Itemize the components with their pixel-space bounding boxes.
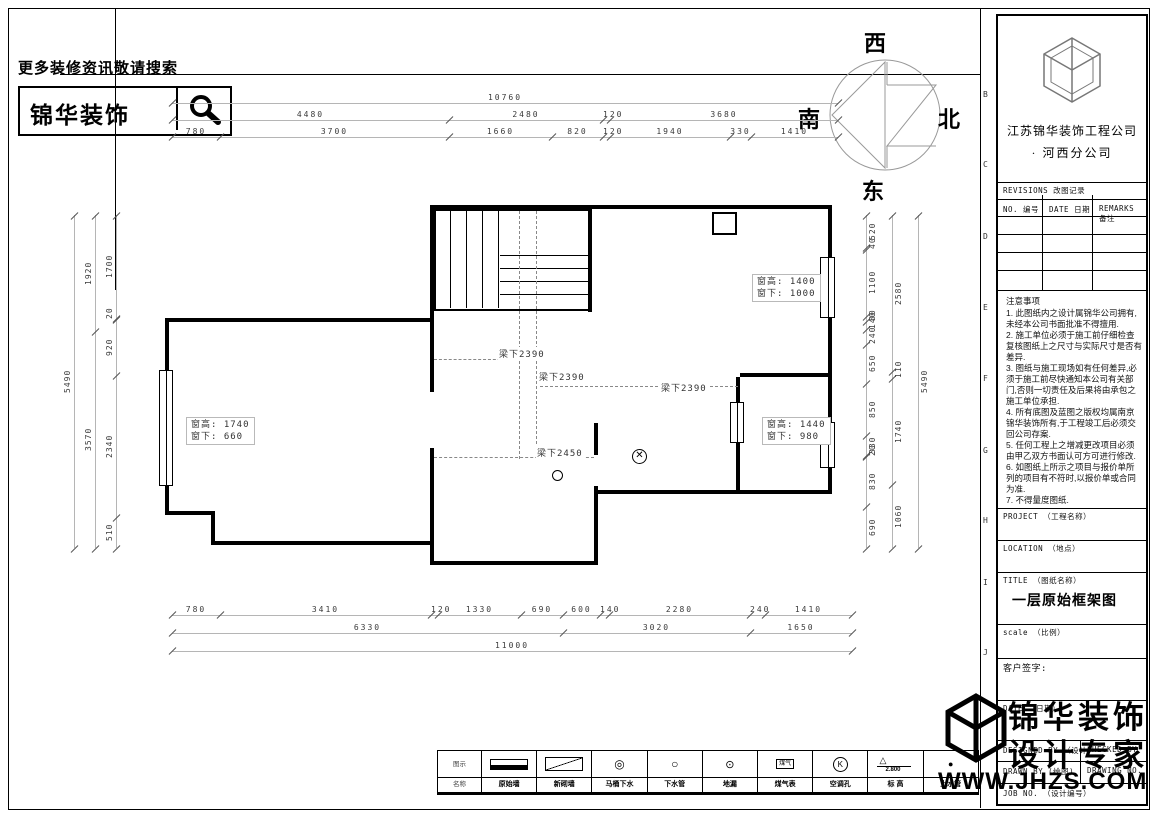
wall-segment: [430, 322, 434, 392]
revisions-col-remarks: REMARKS 备注: [1094, 201, 1146, 224]
stair-tread-line: [500, 294, 588, 295]
window-tag: 窗高: 1740窗下: 660: [186, 417, 255, 445]
scale-label: scale （比例）: [998, 624, 1146, 638]
dim-chain-top-mid: 448024801203680: [172, 107, 838, 121]
wall-segment: [430, 448, 434, 565]
stair-tread-line: [500, 255, 588, 256]
dim-value: 3680: [610, 110, 838, 119]
drawing-title: 一层原始框架图: [998, 586, 1146, 610]
stair-tread-line: [500, 268, 588, 269]
note-item: 4. 所有底图及蓝图之版权均属南京锦华装饰所有,于工程竣工后必须交回公司存案.: [1006, 407, 1142, 440]
wall-segment: [165, 511, 215, 515]
legend-item-name: 原始墙: [482, 778, 536, 792]
floor-drain-icon: ✕: [632, 449, 647, 464]
legend-name-cell: 原始墙: [481, 777, 536, 792]
wall-segment: [434, 561, 598, 565]
grid-letter-E: E: [983, 303, 988, 312]
client-sign-label: 客户签字:: [998, 658, 1146, 674]
dim-value: 2580: [893, 215, 904, 371]
legend-name-cell: 地漏: [702, 777, 757, 792]
beam-label: 梁下2390: [498, 347, 546, 360]
grid-letter-J: J: [983, 648, 988, 657]
beam-dashed-line: [519, 211, 520, 459]
legend-symbol-drain-pipe: ○: [647, 750, 702, 777]
dim-value: 1940: [610, 127, 730, 136]
beam-label: 梁下2390: [660, 381, 708, 394]
legend-item-name: 煤气表: [758, 778, 812, 792]
wall-segment: [828, 377, 832, 422]
title-box: TITLE （图纸名称） 一层原始框架图: [998, 572, 1146, 625]
dim-value: 140: [600, 605, 609, 614]
dim-chain-bottom-detail: 7803410120133069060014022802401410: [172, 602, 852, 616]
brand-name: 锦华装饰: [30, 96, 130, 130]
dim-line: [172, 120, 838, 121]
dim-value: 1060: [893, 484, 904, 548]
dim-value: 4480: [172, 110, 449, 119]
legend-name-cell: 标 高: [867, 777, 922, 792]
legend-symbol-wall-new: [536, 750, 591, 777]
wall-segment: [211, 541, 434, 545]
revisions-grid-col1: [1042, 195, 1043, 290]
dim-line: [172, 137, 838, 138]
dim-chain-right-total: 5490: [916, 215, 930, 548]
dim-value: 830: [867, 456, 878, 506]
dim-value: 3570: [83, 331, 94, 548]
dim-value: 3700: [220, 127, 449, 136]
company-cube-logo-icon: [1038, 34, 1106, 110]
wall-new-icon: [537, 751, 591, 777]
dim-value: 1920: [83, 215, 94, 331]
note-item: 2. 施工单位必须于施工前仔细检查复核图纸上之尺寸与实际尺寸是否有差异.: [1006, 330, 1142, 363]
legend-name-cell: 煤气表: [757, 777, 812, 792]
dim-value: 510: [104, 517, 115, 548]
grid-letter-I: I: [983, 578, 988, 587]
location-box: LOCATION （地点）: [998, 540, 1146, 573]
legend-item-name: 地漏: [703, 778, 757, 792]
dim-value: 1410: [765, 605, 852, 614]
dim-value: 850: [867, 383, 878, 435]
dim-chain-right-detail: 5204011008014024065085033020830690: [864, 215, 878, 548]
dim-value: 240: [750, 605, 765, 614]
revisions-box: REVISIONS 改图记录 NO. 编号 DATE 日期 REMARKS 备注: [998, 182, 1146, 291]
revisions-col-date: DATE 日期: [1044, 201, 1090, 215]
wall-segment: [598, 490, 832, 494]
dim-value: 5490: [62, 215, 73, 548]
stair-tread-line: [500, 281, 588, 282]
legend-header-symbol: 图示: [437, 750, 481, 777]
dim-value: 3020: [563, 623, 750, 632]
search-hint-text: 更多装修资讯敬请搜索: [18, 57, 178, 78]
company-branch: · 河西分公司: [998, 144, 1146, 161]
notes-box: 注意事项 1. 此图纸内之设计属锦华公司拥有,未经本公司书面批准不得擅用. 2.…: [998, 290, 1146, 509]
project-label: PROJECT （工程名称）: [998, 508, 1146, 522]
legend-item-name: 标 高: [868, 778, 922, 792]
legend-item-name: 新砌墙: [537, 778, 591, 792]
grid-letter-F: F: [983, 374, 988, 383]
window-symbol: [820, 257, 835, 318]
dim-value: 120: [603, 110, 610, 119]
legend-table: 图示名称原始墙新砌墙◎马桶下水○下水管⊙地漏煤气煤气表K空调孔△2.800标 高…: [437, 750, 979, 795]
window-sill-label: 窗下: 660: [191, 431, 250, 443]
dim-value: 120: [431, 605, 438, 614]
legend-name-cell: 下水管: [647, 777, 702, 792]
project-box: PROJECT （工程名称）: [998, 508, 1146, 541]
titleblock: 江苏锦华装饰工程公司 · 河西分公司 REVISIONS 改图记录 NO. 编号…: [996, 14, 1148, 806]
window-sill-label: 窗下: 1000: [757, 288, 816, 300]
wall-segment: [165, 322, 169, 370]
wall-segment: [740, 373, 832, 377]
compass-north-label: 北: [938, 102, 960, 134]
dim-value: 1650: [750, 623, 852, 632]
dim-value: 1660: [449, 127, 552, 136]
revisions-row-line: [998, 234, 1146, 235]
dim-line: [74, 215, 75, 548]
wall-segment: [828, 209, 832, 257]
company-box: 江苏锦华装饰工程公司 · 河西分公司: [998, 16, 1146, 183]
grid-letter-G: G: [983, 446, 988, 455]
dim-value: 780: [172, 605, 220, 614]
revisions-row-line: [998, 252, 1146, 253]
dim-value: 6330: [172, 623, 563, 632]
wall-segment: [828, 316, 832, 377]
legend-symbol-gas-meter: 煤气: [757, 750, 812, 777]
level-icon: △2.800: [868, 751, 922, 777]
revisions-grid-col2: [1092, 195, 1093, 290]
dim-value: 600: [563, 605, 600, 614]
dim-value: 650: [867, 344, 878, 383]
revisions-row-line: [998, 270, 1146, 271]
notes-title: 注意事项: [1006, 296, 1142, 307]
compass-east-label: 东: [862, 174, 884, 206]
titleblock-gutter: [980, 8, 996, 808]
legend-header-name: 名称: [437, 777, 481, 792]
window-tag: 窗高: 1400窗下: 1000: [752, 274, 821, 302]
wall-segment: [594, 423, 598, 455]
dim-value: 1410: [751, 127, 838, 136]
dim-chain-bottom-total: 11000: [172, 638, 852, 652]
ac-hole-icon: K: [813, 751, 867, 777]
location-label: LOCATION （地点）: [998, 540, 1146, 554]
beam-dashed-line: [536, 211, 537, 459]
grid-letter-H: H: [983, 516, 988, 525]
legend-item-name: 马桶下水: [592, 778, 646, 792]
legend-name-cell: 空调孔: [812, 777, 867, 792]
dim-line: [172, 103, 838, 104]
stair-tread-line: [498, 211, 499, 308]
note-item: 1. 此图纸内之设计属锦华公司拥有,未经本公司书面批准不得擅用.: [1006, 308, 1142, 330]
grid-letter-C: C: [983, 160, 988, 169]
wall-segment: [594, 486, 598, 565]
legend-symbol-floor-drain: ⊙: [702, 750, 757, 777]
floor-drain-icon: ⊙: [703, 751, 757, 777]
dim-value: 820: [552, 127, 603, 136]
window-symbol: [730, 402, 744, 443]
window-symbol: [159, 370, 173, 486]
dim-chain-left-detail: 1700209202340510: [104, 215, 118, 548]
dim-value: 3410: [220, 605, 431, 614]
flue-box: [712, 212, 737, 235]
drain-pipe-icon: ○: [648, 751, 702, 777]
stair-tread-line: [466, 211, 467, 308]
legend-symbol-wall-orig: [481, 750, 536, 777]
wall-segment: [736, 377, 740, 402]
dim-chain-bottom-mid: 633030201650: [172, 620, 852, 634]
scale-box: scale （比例）: [998, 624, 1146, 659]
stair-tread-line: [450, 211, 451, 308]
dim-line: [172, 651, 852, 652]
dim-value: 920: [104, 319, 115, 375]
dim-value: 1740: [893, 378, 904, 484]
legend-item-name: 空调孔: [813, 778, 867, 792]
note-item: 3. 图纸与施工现场如有任何差异,必须于施工前尽快通知本公司有关部门,否则一切责…: [1006, 363, 1142, 407]
cube-logo-icon: [942, 692, 1010, 766]
beam-dashed-line: [540, 386, 738, 387]
dim-value: 690: [867, 506, 878, 548]
staircase-outline: [434, 209, 590, 311]
dim-value: 11000: [172, 641, 852, 650]
window-sill-label: 窗下: 980: [767, 431, 826, 443]
dim-value: 120: [603, 127, 610, 136]
dim-value: 690: [521, 605, 563, 614]
note-item: 7. 不得量度图纸.: [1006, 495, 1142, 506]
dim-value: 2340: [104, 375, 115, 517]
window-tag: 窗高: 1440窗下: 980: [762, 417, 831, 445]
dim-value: 10760: [172, 93, 838, 102]
grid-letter-B: B: [983, 90, 988, 99]
grid-letter-D: D: [983, 232, 988, 241]
dim-value: 5490: [919, 215, 930, 548]
company-name: 江苏锦华装饰工程公司: [998, 122, 1146, 139]
legend-symbol-ac-hole: K: [812, 750, 867, 777]
title-label: TITLE （图纸名称）: [998, 572, 1146, 586]
dim-value: 1700: [104, 215, 115, 318]
note-item: 6. 如图纸上所示之项目与报价单所列的项目有不符时,以报价单或合同为准.: [1006, 462, 1142, 495]
dim-chain-top-total: 10760: [172, 90, 838, 104]
revisions-title: REVISIONS 改图记录: [998, 182, 1146, 200]
gas-meter-icon: 煤气: [758, 751, 812, 777]
floorplan-sheet: 更多装修资讯敬请搜索 锦华装饰 西 北 东 南 ✕ 梁下2390梁下2390梁下…: [0, 0, 1158, 818]
wall-segment: [736, 441, 740, 494]
window-height-label: 窗高: 1440: [767, 419, 826, 431]
legend-name-cell: 新砌墙: [536, 777, 591, 792]
note-item: 5. 任何工程上之增减更改项目必须由甲乙双方书面认可方可进行修改.: [1006, 440, 1142, 462]
stair-tread-line: [482, 211, 483, 308]
watermark-url: WWW.JHZS.COM: [938, 768, 1147, 796]
legend-item-name: 下水管: [648, 778, 702, 792]
compass-west-label: 西: [864, 26, 886, 58]
dim-value: 2480: [449, 110, 603, 119]
wall-orig-icon: [482, 751, 536, 777]
dim-chain-left-total: 5490: [62, 215, 76, 548]
dim-chain-left-mid: 19203570: [83, 215, 97, 548]
legend-symbol-drain-double: ◎: [591, 750, 646, 777]
dim-value: 1330: [438, 605, 521, 614]
dim-line: [95, 215, 96, 548]
legend-name-cell: 马桶下水: [591, 777, 646, 792]
dim-line: [116, 215, 117, 548]
wall-segment: [165, 318, 434, 322]
beam-label: 梁下2450: [536, 446, 584, 459]
dim-value: 780: [172, 127, 220, 136]
revisions-col-no: NO. 编号: [998, 201, 1039, 215]
drain-double-icon: ◎: [592, 751, 646, 777]
dim-value: 1100: [867, 249, 878, 316]
window-height-label: 窗高: 1740: [191, 419, 250, 431]
window-height-label: 窗高: 1400: [757, 276, 816, 288]
dim-value: 2280: [609, 605, 750, 614]
dim-chain-right-mid: 258011017401060: [890, 215, 904, 548]
dim-value: 330: [730, 127, 751, 136]
beam-label: 梁下2390: [538, 370, 586, 383]
drain-pipe-icon: [552, 470, 563, 481]
legend-symbol-level: △2.800: [867, 750, 922, 777]
dim-chain-top-detail: 7803700166082012019403301410: [172, 124, 838, 138]
